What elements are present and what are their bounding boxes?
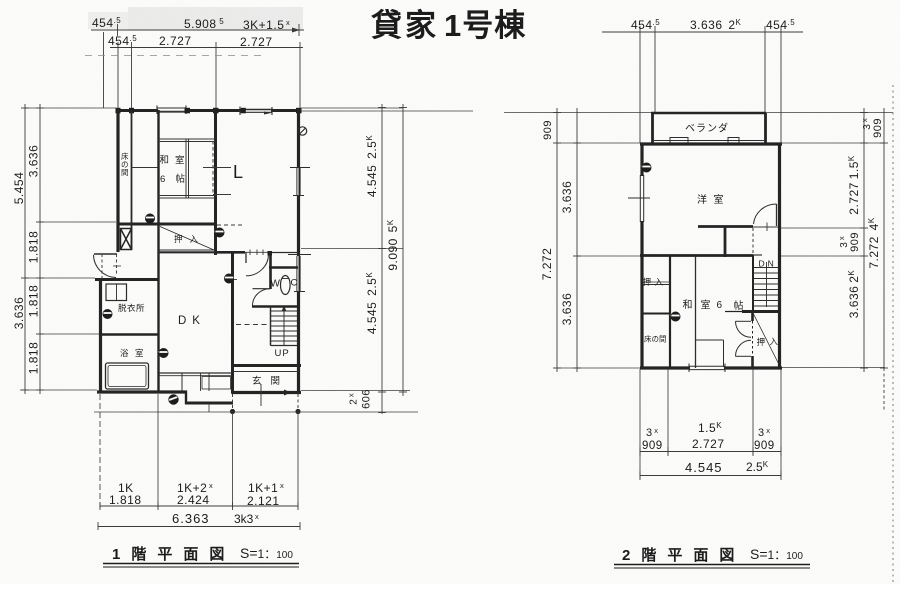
svg-text:9.090 5K: 9.090 5K	[386, 219, 400, 271]
svg-text:2.727: 2.727	[159, 34, 192, 48]
svg-text:室: 室	[714, 193, 724, 206]
svg-text:室: 室	[701, 299, 711, 312]
svg-text:洋: 洋	[697, 193, 707, 206]
svg-text:床の間: 床の間	[644, 334, 667, 344]
svg-text:2.121: 2.121	[247, 494, 280, 508]
svg-text:押: 押	[757, 337, 766, 347]
svg-text:和: 和	[160, 155, 170, 166]
svg-text:帖: 帖	[734, 299, 744, 312]
svg-text:1階平面図: 1階平面図	[112, 545, 235, 563]
svg-text:玄関: 玄関	[252, 375, 289, 387]
svg-text:1.818: 1.818	[27, 342, 41, 375]
svg-text:2.424: 2.424	[177, 493, 210, 507]
svg-text:2階平面図: 2階平面図	[622, 546, 745, 564]
svg-text:貸家: 貸家	[371, 8, 439, 43]
svg-text:押入: 押入	[174, 234, 205, 244]
svg-text:4.545 2.5K: 4.545 2.5K	[365, 272, 379, 335]
svg-text:入: 入	[655, 277, 664, 287]
svg-text:脱衣所: 脱衣所	[118, 303, 145, 313]
svg-text:押: 押	[643, 277, 652, 287]
svg-text:1号棟: 1号棟	[444, 8, 526, 43]
svg-text:間: 間	[121, 168, 129, 177]
svg-text:DK: DK	[178, 315, 206, 327]
svg-text:2.727 1.5K: 2.727 1.5K	[847, 155, 861, 215]
svg-text:W: W	[271, 279, 281, 290]
svg-text:4.545: 4.545	[685, 460, 723, 475]
svg-text:909: 909	[542, 120, 554, 140]
svg-text:6.363: 6.363	[172, 511, 210, 526]
svg-text:606: 606	[361, 389, 373, 409]
svg-text:1.818: 1.818	[27, 231, 41, 264]
svg-text:909: 909	[872, 118, 884, 138]
svg-text:5.454: 5.454	[12, 172, 26, 205]
svg-text:UP: UP	[275, 348, 290, 359]
svg-text:C: C	[291, 278, 298, 289]
svg-text:3.636: 3.636	[560, 293, 574, 326]
svg-text:1.818: 1.818	[109, 493, 142, 507]
svg-text:和: 和	[683, 299, 693, 311]
svg-text:帖: 帖	[176, 173, 186, 185]
svg-text:909: 909	[754, 440, 775, 452]
svg-text:4.545 2.5K: 4.545 2.5K	[365, 135, 379, 198]
svg-text:3.636: 3.636	[27, 145, 41, 178]
svg-text:L: L	[233, 162, 243, 182]
svg-text:浴室: 浴室	[120, 348, 150, 358]
svg-text:909: 909	[849, 232, 861, 252]
svg-text:ベランダ: ベランダ	[685, 122, 729, 135]
svg-text:7.272: 7.272	[540, 248, 554, 281]
svg-text:7.272 4K: 7.272 4K	[867, 217, 881, 269]
svg-text:3.636: 3.636	[12, 297, 26, 330]
svg-text:909: 909	[642, 440, 663, 452]
svg-text:3.636: 3.636	[560, 181, 574, 214]
svg-text:室: 室	[175, 155, 185, 167]
svg-text:3.636 2K: 3.636 2K	[690, 18, 742, 32]
svg-text:6: 6	[160, 174, 165, 185]
svg-text:2.727: 2.727	[692, 437, 725, 451]
svg-text:入: 入	[770, 337, 779, 347]
svg-text:3.636 2K: 3.636 2K	[847, 270, 861, 319]
svg-text:2.727: 2.727	[240, 35, 273, 49]
svg-text:6: 6	[717, 300, 723, 311]
svg-text:1.818: 1.818	[27, 285, 41, 318]
